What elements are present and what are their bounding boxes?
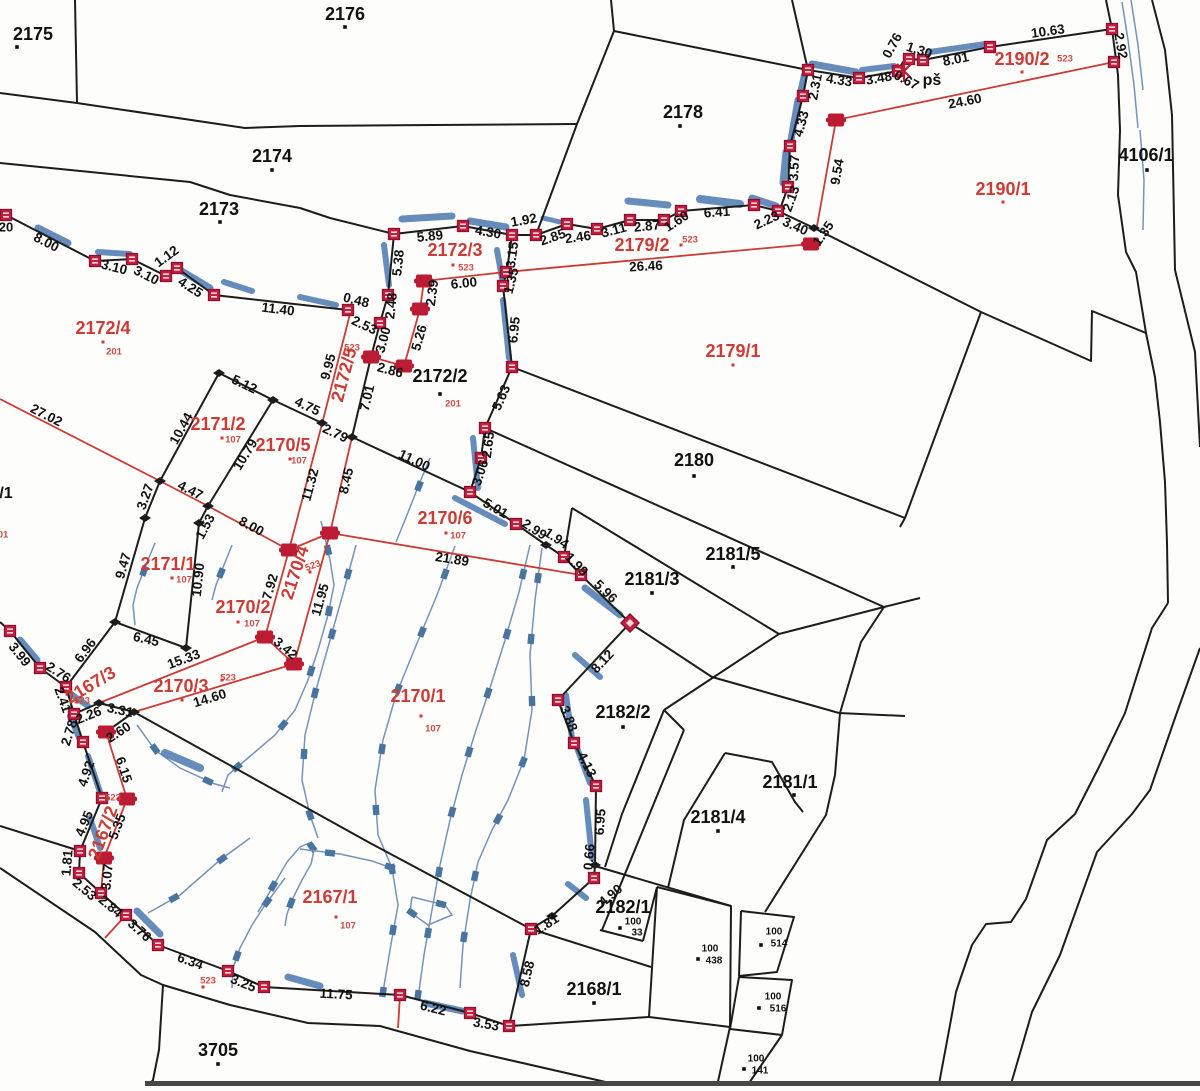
- svg-text:1.81: 1.81: [58, 849, 75, 877]
- svg-text:523: 523: [344, 343, 360, 354]
- svg-text:107: 107: [176, 575, 192, 586]
- svg-text:2182/2: 2182/2: [595, 702, 650, 722]
- svg-text:2181/5: 2181/5: [705, 544, 760, 564]
- svg-text:3705: 3705: [198, 1040, 238, 1060]
- svg-text:141: 141: [752, 1066, 769, 1077]
- svg-text:0.66: 0.66: [581, 843, 598, 871]
- svg-text:2172/2: 2172/2: [412, 366, 467, 386]
- svg-text:5.38: 5.38: [389, 249, 407, 277]
- svg-text:26.46: 26.46: [629, 258, 664, 275]
- svg-text:2.87: 2.87: [633, 217, 660, 234]
- svg-text:2181/4: 2181/4: [690, 807, 745, 827]
- svg-text:523: 523: [458, 263, 474, 274]
- svg-text:4106/1: 4106/1: [1118, 145, 1173, 165]
- svg-text:33: 33: [631, 928, 643, 939]
- svg-text:100: 100: [765, 992, 782, 1003]
- svg-text:100: 100: [748, 1054, 765, 1065]
- svg-text:100: 100: [766, 927, 783, 938]
- svg-text:514: 514: [771, 939, 788, 950]
- svg-text:6.95: 6.95: [592, 808, 609, 836]
- svg-text:2170/5: 2170/5: [255, 435, 310, 455]
- svg-text:523: 523: [220, 673, 236, 684]
- svg-text:107: 107: [450, 531, 466, 542]
- svg-text:201: 201: [106, 347, 123, 358]
- svg-text:2176: 2176: [325, 4, 365, 24]
- svg-text:2.48: 2.48: [382, 292, 400, 320]
- svg-text:6.00: 6.00: [450, 274, 478, 292]
- svg-text:107: 107: [244, 619, 260, 630]
- svg-text:107: 107: [340, 921, 356, 932]
- svg-text:523: 523: [1057, 54, 1073, 65]
- svg-text:2172/3: 2172/3: [427, 240, 482, 260]
- svg-text:2170/2: 2170/2: [215, 597, 270, 617]
- svg-text:2179/2: 2179/2: [614, 235, 669, 255]
- svg-text:2178: 2178: [663, 102, 703, 122]
- svg-text:6.41: 6.41: [703, 204, 731, 221]
- svg-text:2190/1: 2190/1: [975, 179, 1030, 199]
- svg-text:2180: 2180: [674, 450, 714, 470]
- svg-text:2182/1: 2182/1: [595, 897, 650, 917]
- svg-text:2181/3: 2181/3: [624, 569, 679, 589]
- svg-text:107: 107: [225, 435, 241, 446]
- svg-text:523: 523: [682, 235, 698, 246]
- svg-text:100: 100: [702, 944, 719, 955]
- svg-text:2174: 2174: [252, 146, 292, 166]
- svg-text:2175: 2175: [13, 24, 53, 44]
- svg-text:516: 516: [770, 1004, 787, 1015]
- svg-text:2179/1: 2179/1: [705, 341, 760, 361]
- svg-text:107: 107: [291, 456, 307, 467]
- svg-text:pš: pš: [923, 72, 942, 89]
- svg-text:6.95: 6.95: [505, 316, 523, 344]
- svg-text:2181/1: 2181/1: [762, 772, 817, 792]
- svg-text:/1: /1: [0, 485, 13, 502]
- svg-text:2170/1: 2170/1: [390, 686, 445, 706]
- svg-text:2167/1: 2167/1: [302, 887, 357, 907]
- svg-text:523: 523: [200, 976, 216, 987]
- svg-text:3.07: 3.07: [98, 863, 115, 890]
- svg-text:2171/2: 2171/2: [190, 414, 245, 434]
- svg-text:2173: 2173: [199, 199, 239, 219]
- svg-text:2168/1: 2168/1: [566, 979, 621, 999]
- svg-text:100: 100: [625, 917, 642, 928]
- svg-text:2190/2: 2190/2: [994, 49, 1049, 69]
- svg-text:01: 01: [0, 530, 9, 541]
- svg-text:107: 107: [425, 724, 441, 735]
- svg-text:20: 20: [0, 219, 13, 234]
- svg-text:3.57: 3.57: [786, 154, 802, 181]
- svg-text:2171/1: 2171/1: [140, 554, 195, 574]
- svg-text:201: 201: [445, 399, 462, 410]
- svg-text:11.75: 11.75: [319, 986, 353, 1003]
- svg-text:2170/3: 2170/3: [153, 676, 208, 696]
- svg-text:2172/4: 2172/4: [75, 318, 130, 338]
- svg-text:2170/6: 2170/6: [417, 508, 472, 528]
- svg-text:438: 438: [706, 956, 723, 967]
